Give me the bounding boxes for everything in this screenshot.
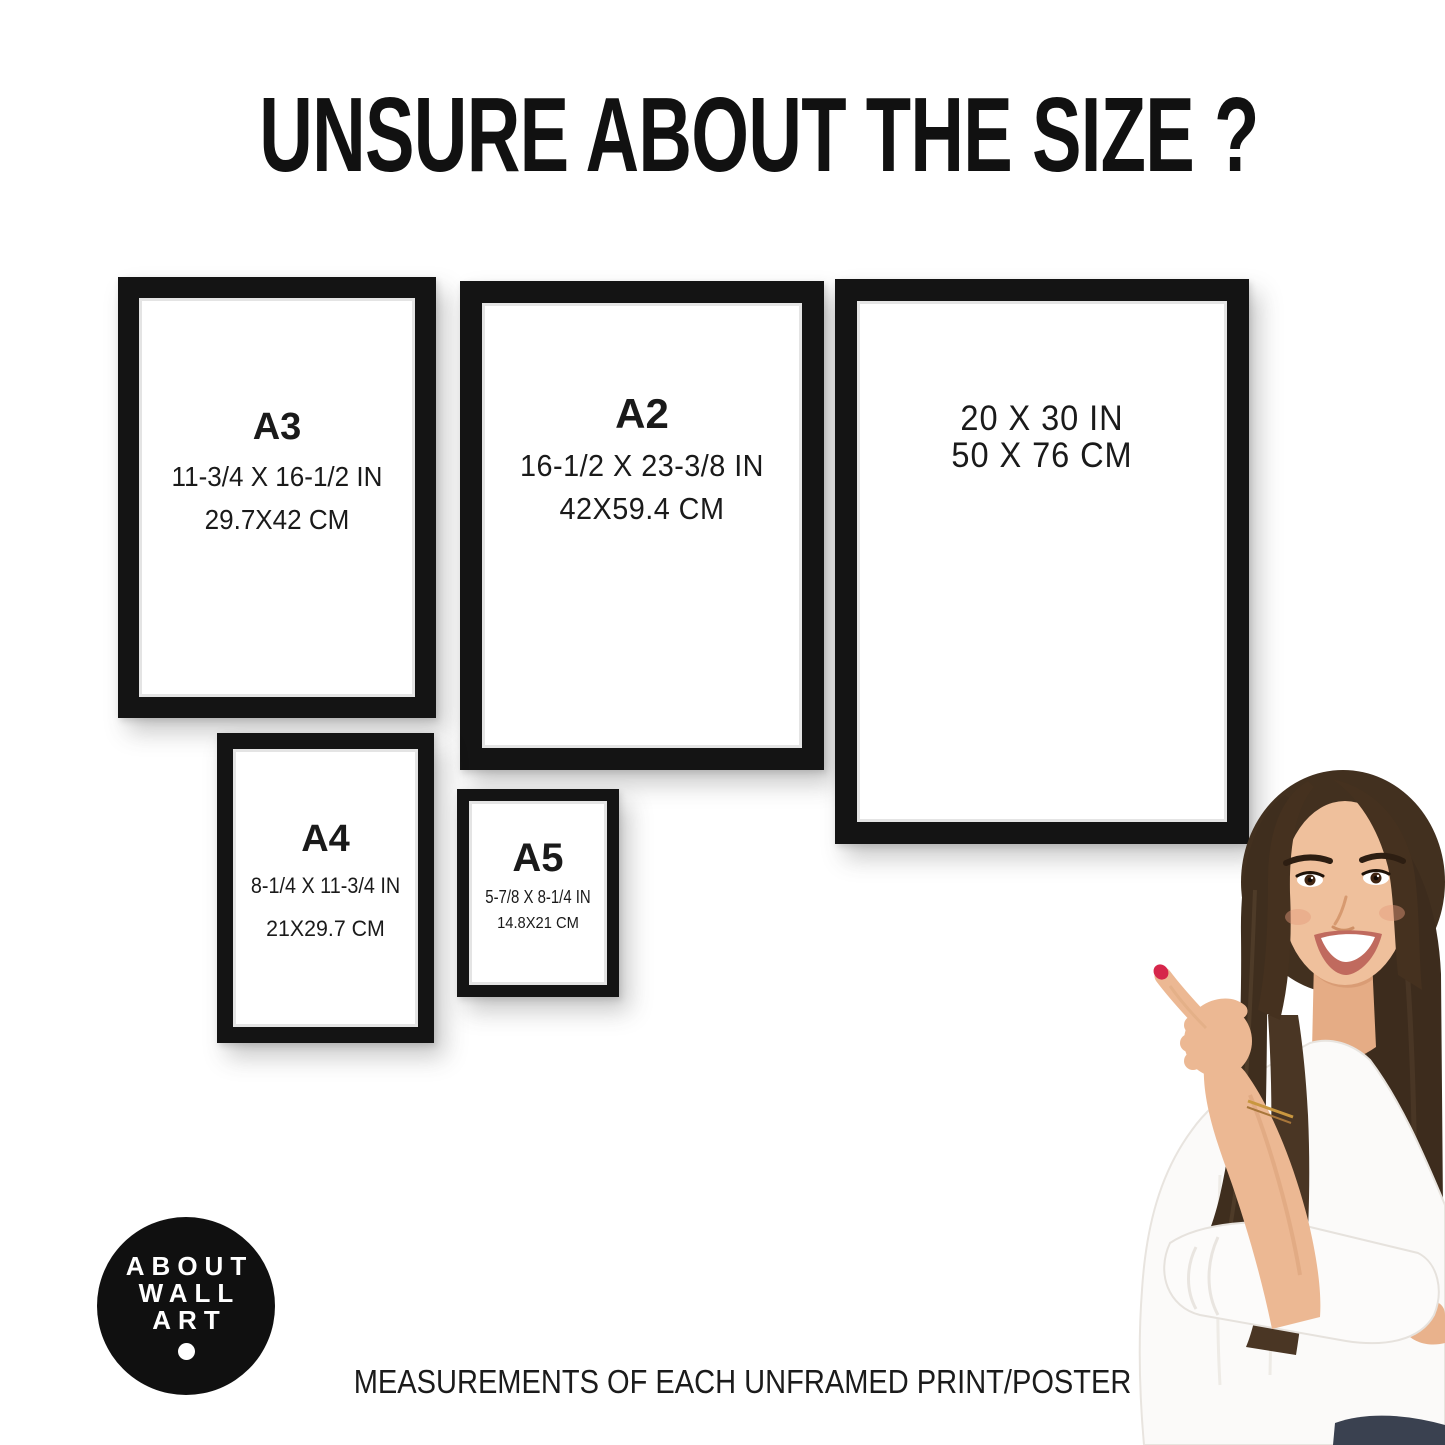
size-frame-20x30: 20 X 30 IN 50 X 76 CM <box>835 279 1249 844</box>
size-cm: 21X29.7 CM <box>236 916 415 942</box>
size-inches: 11-3/4 X 16-1/2 IN <box>149 456 406 499</box>
size-frame-a2: A2 16-1/2 X 23-3/8 IN 42X59.4 CM <box>460 281 824 770</box>
size-cm: 42X59.4 CM <box>493 488 791 531</box>
logo-dot-icon <box>178 1343 195 1360</box>
footer-caption: MEASUREMENTS OF EACH UNFRAMED PRINT/POST… <box>354 1363 966 1401</box>
pointing-woman-image <box>1100 770 1445 1445</box>
size-cm: 29.7X42 CM <box>149 499 406 542</box>
frame-label: A3 <box>139 408 415 446</box>
size-frame-a4: A4 8-1/4 X 11-3/4 IN 21X29.7 CM <box>217 733 434 1043</box>
size-inches: 20 X 30 IN <box>870 400 1214 437</box>
brand-logo: ABOUT WALL ART <box>97 1217 275 1395</box>
size-inches: 16-1/2 X 23-3/8 IN <box>493 445 791 488</box>
logo-line: ABOUT <box>119 1253 253 1280</box>
frame-text-a2: A2 16-1/2 X 23-3/8 IN 42X59.4 CM <box>482 393 802 531</box>
frame-label: A5 <box>469 838 607 878</box>
size-frame-a3: A3 11-3/4 X 16-1/2 IN 29.7X42 CM <box>118 277 436 718</box>
size-inches: 8-1/4 X 11-3/4 IN <box>242 873 409 899</box>
size-frame-a5: A5 5-7/8 X 8-1/4 IN 14.8X21 CM <box>457 789 619 997</box>
frame-text-a3: A3 11-3/4 X 16-1/2 IN 29.7X42 CM <box>139 408 415 541</box>
page-title: UNSURE ABOUT THE SIZE ? <box>259 82 1236 188</box>
frame-text-20x30: 20 X 30 IN 50 X 76 CM <box>857 400 1227 475</box>
size-guide-infographic: UNSURE ABOUT THE SIZE ? A3 11-3/4 X 16-1… <box>0 0 1445 1445</box>
logo-line: WALL <box>132 1280 241 1307</box>
frame-text-a4: A4 8-1/4 X 11-3/4 IN 21X29.7 CM <box>233 820 418 942</box>
size-cm: 14.8X21 CM <box>475 915 602 933</box>
frame-text-a5: A5 5-7/8 X 8-1/4 IN 14.8X21 CM <box>469 838 607 933</box>
frame-label: A2 <box>482 393 802 435</box>
logo-line: ART <box>145 1307 226 1334</box>
size-inches: 5-7/8 X 8-1/4 IN <box>481 887 596 908</box>
frame-label: A4 <box>233 820 418 858</box>
size-cm: 50 X 76 CM <box>870 437 1214 474</box>
